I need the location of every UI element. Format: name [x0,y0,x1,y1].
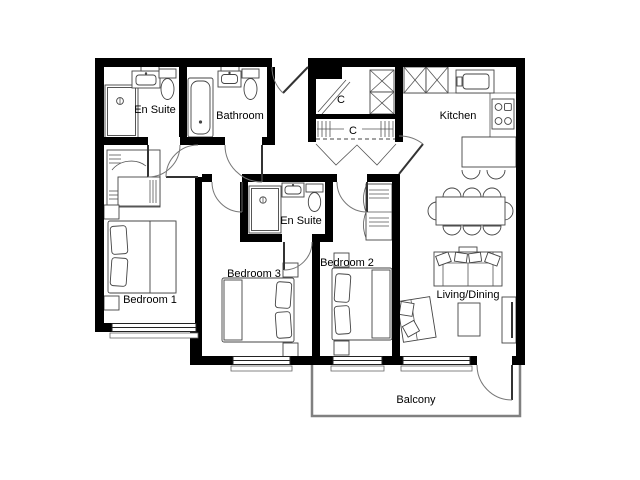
closet-hall-label: C [349,125,357,137]
bedroom-2-window [331,357,384,372]
kitchen-island [462,137,516,179]
bathtub [188,78,213,137]
dining-set [428,188,513,235]
bedroom-1-label: Bedroom 1 [123,294,177,306]
hob [492,99,514,129]
ensuite-mid-label: En Suite [280,215,322,227]
bedroom-3-window [231,357,292,372]
floor-plan: En Suite Bathroom C C Kitchen En Suite B… [0,0,640,480]
kitchen-sink [456,70,494,93]
bathroom-label: Bathroom [216,110,264,122]
bedroom-2-door [337,182,367,212]
ensuite-mid-basin [282,183,304,197]
coffee-table [458,303,480,336]
floor-plan-page: En Suite Bathroom C C Kitchen En Suite B… [0,0,640,480]
kitchen-label: Kitchen [440,110,477,122]
ensuite-mid-shower [249,186,281,233]
bedroom-3-door [212,182,242,212]
bedroom-1-door [166,145,198,177]
entrance-door [272,67,308,93]
balcony-label: Balcony [396,394,436,406]
bathroom-basin [218,71,241,87]
bedroom-1-window [110,324,198,339]
ensuite-mid-toilet [306,184,323,212]
living-dining-label: Living/Dining [437,289,500,301]
bedroom-1-wardrobe [107,150,160,207]
balcony-door [477,365,512,400]
armchair [397,297,436,343]
bedroom-3-label: Bedroom 3 [227,268,281,280]
closet-top-label: C [337,94,345,106]
ensuite-top-toilet [159,69,176,100]
ensuite-top-basin [132,71,160,88]
balcony-outline [312,365,520,416]
ensuite-top-shower [105,85,138,138]
living-window [401,357,472,372]
bedroom-2-label: Bedroom 2 [320,257,374,269]
tv-unit [502,297,516,343]
bathroom-toilet [242,69,259,100]
sofa [434,247,502,286]
ensuite-top-label: En Suite [134,104,176,116]
